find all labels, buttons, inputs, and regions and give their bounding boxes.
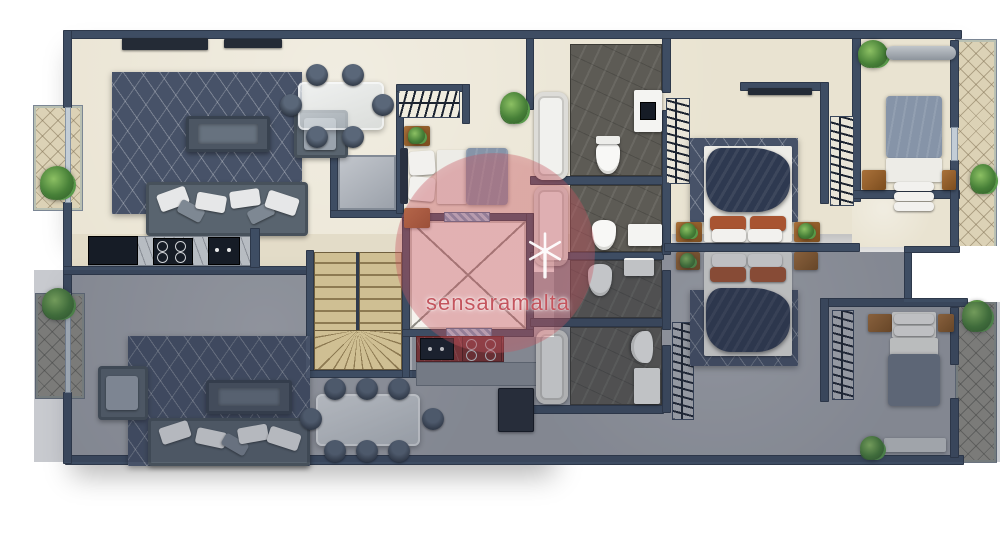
sink-basin: [428, 347, 432, 351]
bed2-sheet: [437, 150, 467, 204]
armchair-cushion: [106, 376, 138, 410]
master-tv: [748, 88, 812, 95]
vanity: [628, 224, 662, 246]
burner: [175, 252, 186, 263]
service-duct: [338, 155, 396, 210]
bed3-pillow: [894, 182, 934, 191]
bed3-pillow: [894, 192, 934, 201]
wardrobe-rail: [398, 90, 460, 118]
fridge: [498, 388, 534, 432]
sink-basin: [227, 248, 231, 252]
master-pillow: [712, 229, 746, 242]
balcony-plant: [40, 166, 74, 200]
wall-duct-horiz: [330, 210, 406, 218]
nightstand: [942, 170, 956, 190]
vanity-basin: [640, 102, 656, 120]
dining-chair: [422, 408, 444, 430]
bed3-sheet: [886, 158, 942, 182]
dining-chair: [388, 378, 410, 400]
dining-chair: [324, 378, 346, 400]
master-pillow: [748, 254, 782, 267]
bathtub: [534, 186, 568, 266]
potted-plant: [798, 223, 814, 239]
void-notch: [910, 246, 1000, 302]
wall-master-right-v: [820, 82, 829, 204]
burner: [485, 350, 496, 361]
dining-chair: [306, 64, 328, 86]
nightstand: [862, 170, 886, 190]
wall-outer-left-1: [63, 30, 72, 108]
wall-wardrobe2-right: [462, 84, 470, 124]
terrace-plant: [970, 164, 996, 194]
vanity: [624, 258, 654, 276]
hall-plant: [500, 92, 528, 124]
wall-bath-left-upper: [526, 38, 534, 110]
nightstand: [868, 314, 892, 332]
dining-chair: [388, 440, 410, 462]
potted-plant: [408, 127, 425, 144]
dining-chair: [280, 94, 302, 116]
toilet-tank: [596, 136, 620, 144]
bed4-duvet: [888, 354, 940, 406]
wardrobe-rail-lower: [832, 310, 854, 400]
potted-plant: [860, 436, 884, 460]
wall-br-bedroom-left: [820, 298, 829, 402]
terrace-upper-right: [956, 40, 996, 256]
bed2-pillow: [408, 176, 436, 202]
wall-bath-bottom: [530, 405, 664, 414]
terrace-door-upper: [952, 128, 957, 160]
wall-bath-right-1: [662, 38, 671, 93]
dining-chair: [342, 64, 364, 86]
wall-bath-divider-3: [530, 318, 664, 327]
wall-unit-divider-left: [63, 266, 313, 275]
wardrobe-rail: [830, 116, 854, 206]
master-pillow-accent: [710, 267, 746, 282]
bed3-pillow: [894, 202, 934, 211]
coffee-table-top: [198, 124, 258, 144]
master-duvet: [706, 148, 790, 212]
master-pillow-accent: [750, 267, 786, 282]
burner: [157, 241, 168, 252]
stove-lower: [462, 336, 502, 362]
wall-kitchen-end: [250, 228, 260, 268]
potted-plant: [858, 40, 888, 68]
staircase-winders: [314, 330, 402, 370]
dining-table-lower: [316, 394, 420, 446]
wardrobe-rail: [666, 98, 690, 184]
bed2-pillow: [408, 150, 436, 176]
burner: [175, 241, 186, 252]
burner: [485, 339, 496, 350]
wall-outer-left-2: [63, 202, 72, 296]
kitchen-sink-lower: [420, 338, 454, 360]
bed4-pillow: [894, 314, 934, 324]
lift-shaft: [410, 221, 526, 329]
ac-unit: [886, 46, 956, 60]
wall-outer-left-3: [63, 392, 72, 464]
balcony-plant: [42, 288, 74, 320]
potted-plant: [680, 253, 695, 268]
bed4-pillow: [894, 326, 934, 336]
floor-plan-canvas: sensaramalta: [0, 0, 1000, 550]
wall-duct-vert: [330, 148, 338, 218]
staircase-flight-right: [359, 252, 402, 332]
nightstand: [938, 314, 954, 332]
kitchen-cabinet: [88, 236, 138, 265]
bench: [884, 438, 946, 452]
wall-bath-right-4: [662, 345, 671, 413]
bed2-duvet: [466, 148, 508, 205]
dining-chair: [356, 378, 378, 400]
toilet: [631, 331, 653, 363]
wall-master-south: [664, 243, 860, 252]
bathtub: [534, 92, 568, 180]
dining-chair: [356, 440, 378, 462]
basin-cabinet: [634, 368, 660, 404]
kitchen-sink: [208, 237, 240, 265]
master-pillow: [712, 254, 746, 267]
wall-bath-right-3: [662, 270, 671, 330]
wall-notch-top: [904, 246, 960, 253]
stove: [153, 238, 193, 265]
staircase-divider: [356, 252, 359, 330]
terrace-plant: [962, 300, 992, 332]
sink-basin: [215, 248, 219, 252]
media-shelf: [224, 39, 282, 48]
bed3-duvet: [886, 96, 942, 158]
master-pillow: [748, 229, 782, 242]
wall-notch-left: [904, 246, 912, 304]
dining-chair: [342, 126, 364, 148]
potted-plant: [680, 223, 696, 239]
wall-stair-lift-shared: [402, 213, 410, 378]
lift-door-upper: [444, 212, 490, 222]
dining-chair: [306, 126, 328, 148]
dining-chair: [372, 94, 394, 116]
sink-basin: [440, 347, 444, 351]
coffee-table-top: [218, 388, 280, 406]
bed2-headboard: [400, 148, 408, 204]
bathtub: [536, 330, 568, 404]
wall-br-bedroom-top: [820, 298, 968, 307]
nightstand: [794, 252, 818, 270]
nightstand: [404, 208, 430, 228]
tv-console: [122, 38, 208, 50]
wall-terrace-div-4: [950, 398, 959, 458]
burner: [466, 339, 477, 350]
dining-chair: [300, 408, 322, 430]
burner: [157, 252, 168, 263]
master-duvet-lower: [706, 288, 790, 352]
staircase-flight-left: [314, 252, 357, 332]
burner: [466, 350, 477, 361]
dining-chair: [324, 440, 346, 462]
